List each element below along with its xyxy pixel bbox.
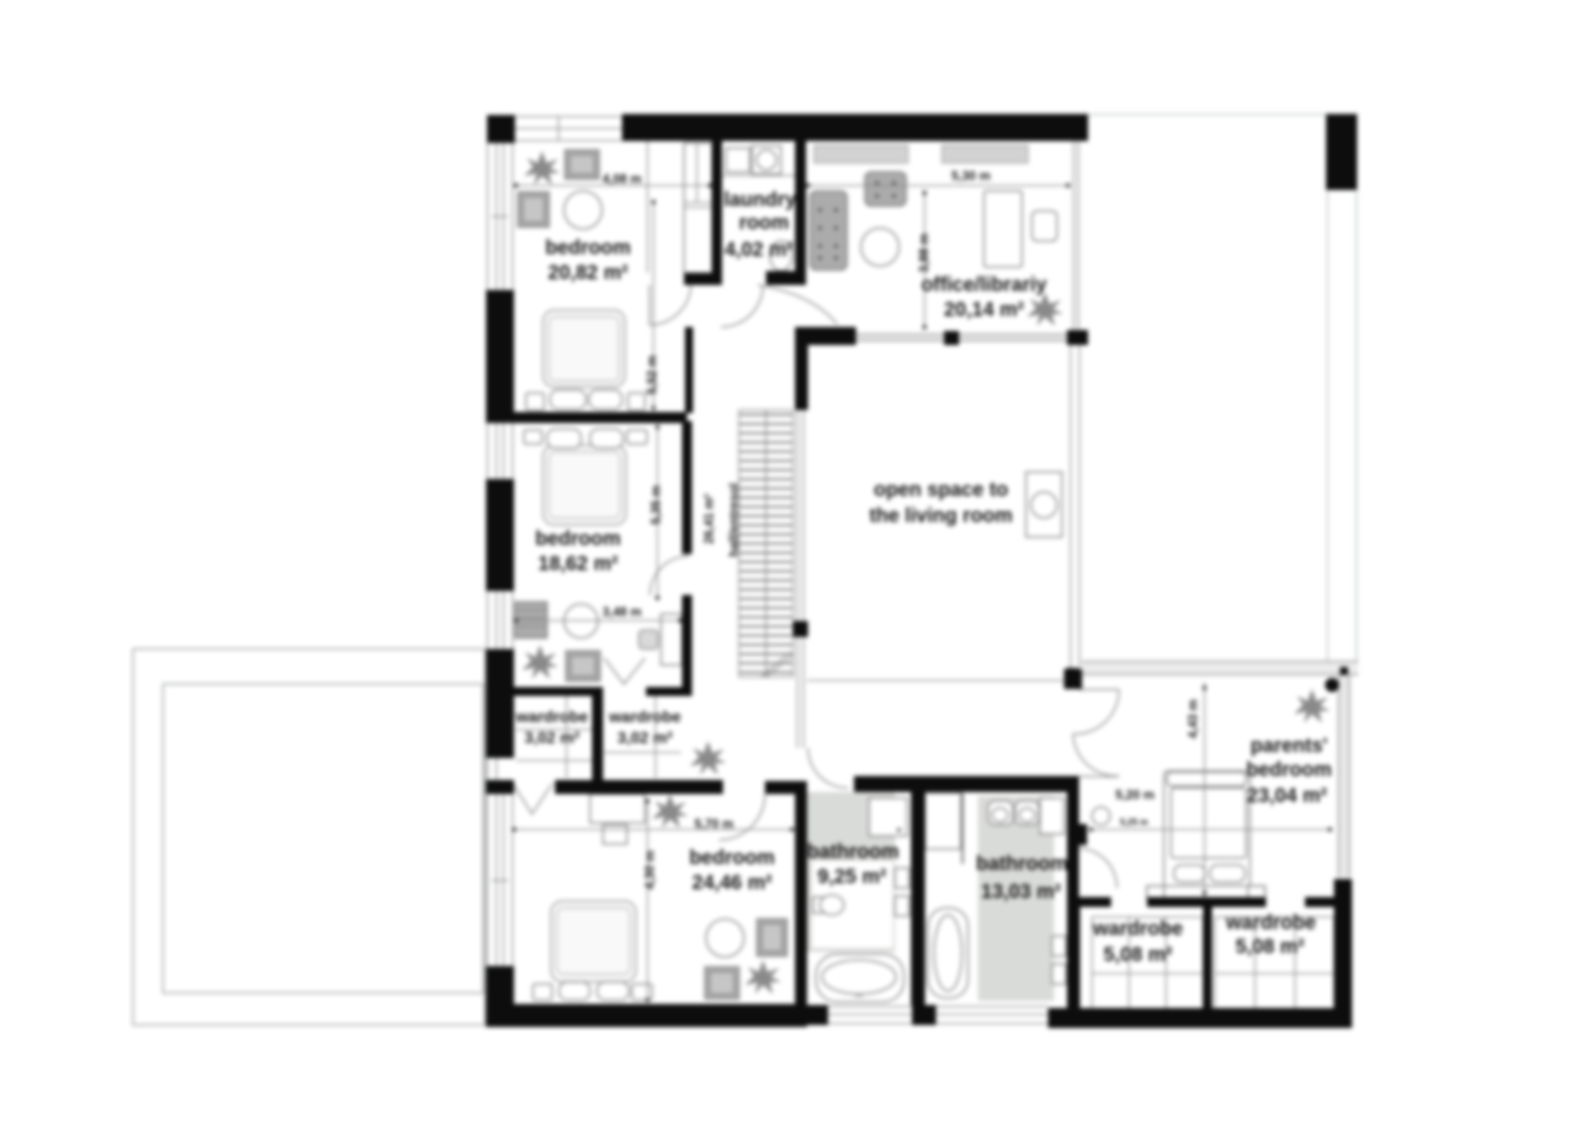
svg-text:26,41 m²: 26,41 m² bbox=[702, 494, 716, 544]
svg-text:3,02 m²: 3,02 m² bbox=[617, 730, 672, 747]
svg-text:wardrobe: wardrobe bbox=[608, 709, 681, 726]
svg-text:3,88 m: 3,88 m bbox=[917, 234, 931, 273]
svg-text:5,35 m: 5,35 m bbox=[649, 486, 663, 525]
svg-text:4,43 m: 4,43 m bbox=[1186, 700, 1200, 739]
svg-text:the living room: the living room bbox=[869, 505, 1012, 527]
svg-text:5,20 m: 5,20 m bbox=[1116, 788, 1155, 802]
svg-text:parents': parents' bbox=[1250, 735, 1327, 757]
svg-text:9,25 m²: 9,25 m² bbox=[818, 866, 887, 888]
svg-text:wardrobe: wardrobe bbox=[1225, 912, 1316, 934]
svg-text:13,03 m²: 13,03 m² bbox=[981, 881, 1061, 903]
svg-text:23,04 m²: 23,04 m² bbox=[1247, 785, 1327, 807]
svg-text:bedroom: bedroom bbox=[689, 847, 775, 869]
svg-text:5,52 m: 5,52 m bbox=[645, 356, 659, 395]
svg-text:18,62 m²: 18,62 m² bbox=[538, 553, 618, 575]
svg-text:open space to: open space to bbox=[874, 479, 1008, 501]
svg-text:5,08 m²: 5,08 m² bbox=[1236, 936, 1305, 958]
svg-text:laundry: laundry bbox=[724, 189, 797, 211]
svg-text:20,14 m²: 20,14 m² bbox=[944, 299, 1024, 321]
svg-text:5,08 m²: 5,08 m² bbox=[1104, 944, 1173, 966]
svg-text:5,30 m: 5,30 m bbox=[952, 169, 991, 183]
svg-text:4,30 m: 4,30 m bbox=[643, 851, 657, 890]
svg-text:hall/entresol: hall/entresol bbox=[727, 483, 741, 557]
svg-text:3,02 m²: 3,02 m² bbox=[524, 730, 579, 747]
svg-text:3,48 m: 3,48 m bbox=[603, 605, 642, 619]
svg-text:wardrobe: wardrobe bbox=[1092, 918, 1183, 940]
svg-text:4,02 m²: 4,02 m² bbox=[725, 239, 794, 261]
svg-text:bathroom: bathroom bbox=[807, 841, 899, 863]
svg-text:bathroom: bathroom bbox=[976, 853, 1068, 875]
svg-text:bedroom: bedroom bbox=[535, 528, 621, 550]
svg-text:24,46 m²: 24,46 m² bbox=[692, 872, 772, 894]
svg-text:bedroom: bedroom bbox=[1246, 759, 1332, 781]
svg-text:20,82 m²: 20,82 m² bbox=[548, 262, 628, 284]
svg-text:5,70 m: 5,70 m bbox=[695, 817, 734, 831]
svg-text:room: room bbox=[739, 212, 789, 234]
svg-text:wardrobe: wardrobe bbox=[515, 709, 588, 726]
svg-text:bedroom: bedroom bbox=[545, 237, 631, 259]
svg-text:4,08 m: 4,08 m bbox=[603, 172, 642, 186]
svg-text:office/librariy: office/librariy bbox=[921, 274, 1047, 296]
svg-text:5,25 m: 5,25 m bbox=[1120, 817, 1148, 827]
